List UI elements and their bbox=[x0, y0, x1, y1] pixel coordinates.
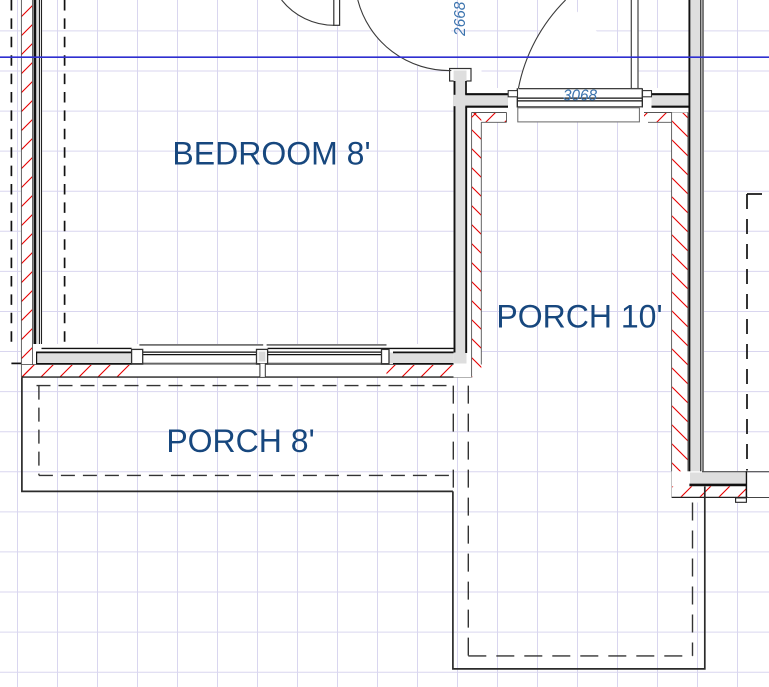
svg-text:PORCH 10': PORCH 10' bbox=[496, 298, 662, 334]
svg-text:BEDROOM 8': BEDROOM 8' bbox=[172, 135, 370, 171]
svg-text:PORCH 8': PORCH 8' bbox=[166, 423, 314, 459]
svg-text:2668: 2668 bbox=[452, 1, 469, 37]
svg-text:3068: 3068 bbox=[563, 88, 598, 105]
